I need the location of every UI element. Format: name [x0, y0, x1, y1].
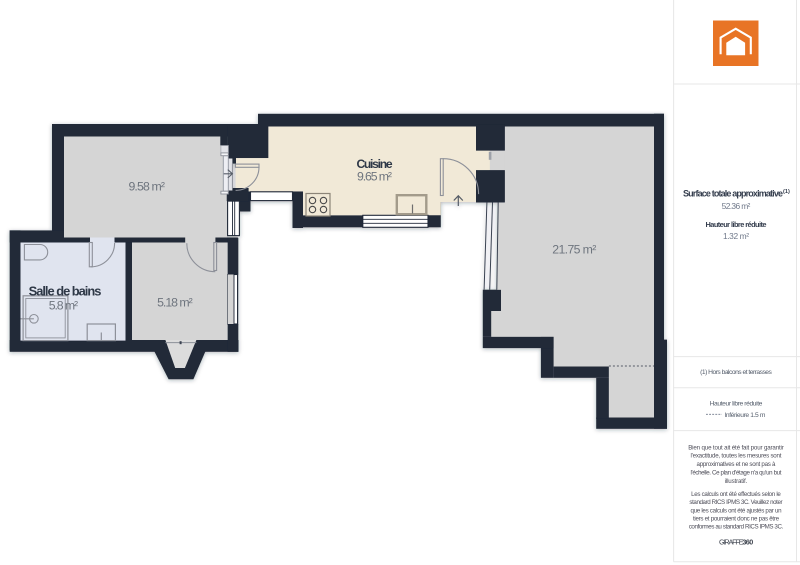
svg-text:Inférieure 1.5 m: Inférieure 1.5 m: [724, 412, 765, 419]
svg-text:GIRAFFE360: GIRAFFE360: [719, 537, 753, 546]
svg-text:tiers et pourraient donc ne pa: tiers et pourraient donc ne pas être: [693, 516, 780, 523]
svg-text:l'exactitude, toutes les mesur: l'exactitude, toutes les mesures sont: [691, 453, 782, 460]
svg-text:conformes au standard RICS IPM: conformes au standard RICS IPMS 3C.: [689, 524, 784, 531]
svg-text:illustratif.: illustratif.: [725, 478, 748, 485]
svg-text:standard RICS IPMS 3C. Veuille: standard RICS IPMS 3C. Veuillez noter: [689, 499, 782, 506]
svg-text:9.58 m²: 9.58 m²: [128, 180, 165, 194]
svg-text:5.18 m²: 5.18 m²: [157, 295, 193, 309]
svg-text:(1) Hors balcons et terrasses: (1) Hors balcons et terrasses: [700, 369, 772, 376]
svg-text:l'échelle. Ce plan d'étage n'a: l'échelle. Ce plan d'étage n'a qu'un but: [691, 470, 782, 477]
svg-text:Hauteur libre réduite: Hauteur libre réduite: [706, 220, 767, 229]
svg-text:Bien que tout ait été fait pou: Bien que tout ait été fait pour garantir: [688, 444, 784, 451]
svg-text:approximatives et ne sont pas: approximatives et ne sont pas à: [697, 461, 776, 468]
svg-text:52.36 m²: 52.36 m²: [722, 201, 751, 211]
svg-text:1.32 m²: 1.32 m²: [723, 231, 749, 241]
svg-text:Salle de bains: Salle de bains: [29, 284, 102, 299]
svg-text:9.65 m²: 9.65 m²: [357, 170, 392, 184]
svg-text:(1): (1): [783, 189, 790, 195]
svg-text:Hauteur libre réduite: Hauteur libre réduite: [710, 400, 763, 407]
svg-text:21.75 m²: 21.75 m²: [552, 243, 596, 257]
svg-text:que les calculs ont été ajusté: que les calculs ont été ajustés par un: [690, 507, 782, 514]
svg-text:Surface totale approximative: Surface totale approximative: [683, 188, 783, 198]
svg-text:Les calculs ont été effectués: Les calculs ont été effectués selon le: [691, 491, 781, 498]
svg-text:5.8 m²: 5.8 m²: [49, 298, 78, 312]
